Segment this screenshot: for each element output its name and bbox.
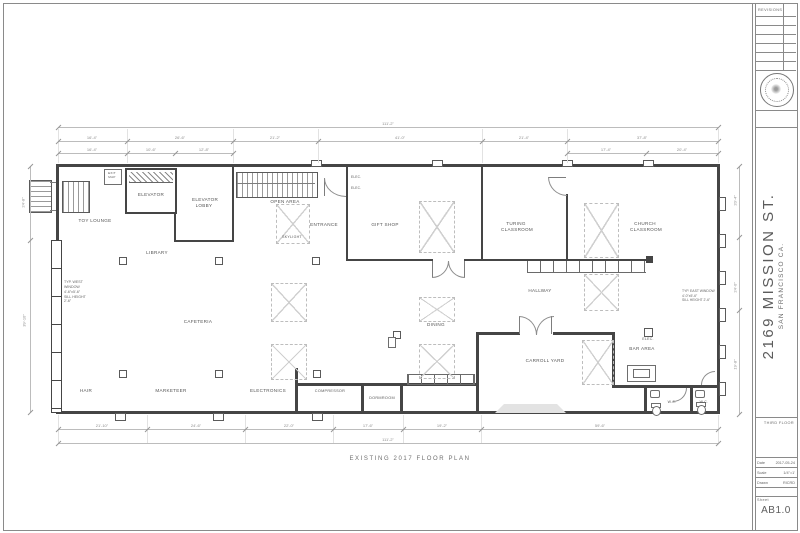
wall xyxy=(479,332,520,335)
room-label-entrance: ENTRANCE xyxy=(307,222,341,228)
extension-line xyxy=(482,129,483,163)
pilaster xyxy=(719,271,726,285)
skylight-outline xyxy=(271,344,307,380)
revisions-row-line xyxy=(756,52,796,53)
room-label-dormroom: DORMROOM xyxy=(362,396,402,401)
room-label-bar-area: BAR AREA xyxy=(624,346,660,352)
titleblock-row-line xyxy=(756,110,797,111)
room-label-hair: HAIR xyxy=(74,388,98,394)
hallway-cubbies xyxy=(527,261,646,273)
dimension-text: 41'-0" xyxy=(394,135,406,140)
drawn-row: Drawn RICRD xyxy=(757,478,795,487)
room-label-elevator: ELEVATOR xyxy=(133,192,169,198)
dimension-text: 39'-10" xyxy=(22,314,27,326)
dimension-line xyxy=(30,166,31,413)
titleblock-row-line xyxy=(756,417,797,418)
dimension-text: 20'-4" xyxy=(733,195,738,205)
wall xyxy=(612,385,718,388)
extension-line xyxy=(58,129,59,163)
column xyxy=(312,257,320,265)
scale-row: Scale 1/4"=1' xyxy=(757,468,795,477)
dimension-text: 37'-8" xyxy=(636,135,648,140)
column xyxy=(215,370,223,378)
pilaster xyxy=(311,160,322,167)
dimension-text: 19'-8" xyxy=(733,359,738,369)
titleblock-row-line xyxy=(756,127,797,128)
room-label-cafeteria: CAFETERIA xyxy=(178,319,218,325)
extension-line xyxy=(718,129,719,163)
bar-counter-inner xyxy=(633,369,650,378)
sheet-label: Sheet xyxy=(757,498,769,502)
titleblock-divider-inner xyxy=(755,3,756,530)
room-label-church-classroom: CHURCH CLASSROOM xyxy=(630,221,660,233)
dimension-text: 17'-4" xyxy=(600,147,612,152)
scale-label: Scale xyxy=(757,471,767,475)
revisions-header: REVISIONS xyxy=(758,8,782,12)
wall xyxy=(174,240,234,242)
titleblock-divider xyxy=(752,3,753,530)
dimension-text: 21'-4" xyxy=(518,135,530,140)
drawing-title: EXISTING 2017 FLOOR PLAN xyxy=(328,456,492,462)
dimension-text: 12'-8" xyxy=(198,147,210,152)
skylight-outline xyxy=(584,203,619,258)
dimension-text: 21'-2" xyxy=(269,135,281,140)
east-window-note: TYP. EAST WINDOW 4'-0"x5'-6" SILL HEIGHT… xyxy=(682,289,716,303)
floor-label: THIRD FLOOR xyxy=(757,421,794,425)
sheet-border xyxy=(3,3,798,531)
architect-stamp-center xyxy=(771,84,781,94)
wall xyxy=(476,332,479,413)
skylight-outline xyxy=(271,283,307,322)
skylight-outline xyxy=(419,297,455,322)
dimension-text: 111'-2" xyxy=(381,437,395,442)
date-row: Date 2017-05-24 xyxy=(757,458,795,467)
drawn-label: Drawn xyxy=(757,481,768,485)
skylight-outline xyxy=(419,344,455,379)
west-window-note: TYP. WEST WINDOW 4'-6"x5'-6" SILL HEIGHT… xyxy=(64,280,106,304)
room-label-open-area: OPEN AREA xyxy=(263,199,307,205)
dimension-text: 21'-10" xyxy=(95,423,109,428)
room-label-electronics: ELECTRONICS xyxy=(245,388,291,394)
dimension-line xyxy=(58,141,718,142)
yard-planter-ramp xyxy=(495,404,566,413)
exterior-stair xyxy=(29,180,52,213)
pilaster xyxy=(312,413,323,421)
dimension-text: 16'-4" xyxy=(86,135,98,140)
elevator-hatch xyxy=(129,172,173,183)
wall xyxy=(295,383,404,386)
skylight-outline xyxy=(582,340,614,385)
room-label-elec-b: ELEC. xyxy=(351,186,365,190)
room-label-wc-left: W.C. xyxy=(664,400,680,405)
project-address: 2169 MISSION ST. xyxy=(760,151,778,401)
revisions-row-line xyxy=(756,43,796,44)
wall xyxy=(232,166,234,242)
pilaster xyxy=(213,413,224,421)
room-label-carroll-yard: CARROLL YARD xyxy=(517,358,573,364)
pilaster xyxy=(719,234,726,248)
date-label: Date xyxy=(757,461,765,465)
pilaster xyxy=(719,345,726,359)
dimension-line xyxy=(58,443,718,444)
wall xyxy=(174,212,176,242)
revisions-row-line xyxy=(756,16,796,17)
pilaster xyxy=(719,197,726,211)
room-label-marketeer: MARKETEER xyxy=(149,388,193,394)
dimension-text: 19'-2" xyxy=(436,423,448,428)
dimension-text: 22'-0" xyxy=(283,423,295,428)
room-label-gift-shop: GIFT SHOP xyxy=(365,222,405,228)
room-label-turing-classroom: TURING CLASSROOM xyxy=(501,221,531,233)
floor-plan-sheet: REVISIONS 2169 MISSION ST. SAN FRANCISCO… xyxy=(0,0,800,533)
wall xyxy=(566,194,568,261)
extension-line xyxy=(318,129,319,163)
room-label-elevator-lobby: ELEVATOR LOBBY xyxy=(192,197,216,209)
revisions-row-line xyxy=(756,25,796,26)
pilaster xyxy=(643,160,654,167)
stair-rail xyxy=(237,183,315,184)
skylight-outline xyxy=(419,201,455,253)
dimension-line xyxy=(567,153,718,154)
interior-stair-west xyxy=(62,181,90,213)
wall xyxy=(553,332,615,335)
pilaster xyxy=(432,160,443,167)
stair-connector xyxy=(50,182,56,183)
pilaster xyxy=(719,382,726,396)
stair-connector xyxy=(50,210,56,211)
revisions-row-line xyxy=(756,70,796,71)
dimension-line xyxy=(58,153,233,154)
room-label-skylight: SKYLIGHT xyxy=(276,235,308,240)
dimension-text: 16'-4" xyxy=(86,147,98,152)
wall xyxy=(346,164,348,261)
pilaster xyxy=(115,413,126,421)
dimension-text: 17'-6" xyxy=(362,423,374,428)
wall xyxy=(481,164,483,261)
sheet-number: AB1.0 xyxy=(756,505,796,516)
dimension-text: 26'-6" xyxy=(174,135,186,140)
wall xyxy=(56,164,720,167)
room-label-dining: DINING xyxy=(418,322,454,328)
sink xyxy=(650,390,660,398)
dimension-text: 59'-6" xyxy=(594,423,606,428)
dimension-text: 10'-6" xyxy=(145,147,157,152)
wall-post xyxy=(646,256,653,263)
pilaster xyxy=(719,308,726,322)
room-label-wc-right: W.C. xyxy=(696,400,712,405)
room-label-elec-a: ELEC. xyxy=(351,175,365,179)
wall xyxy=(644,388,647,413)
dimension-text: 24'-6" xyxy=(190,423,202,428)
dimension-text: 24'-0" xyxy=(733,282,738,292)
room-label-compressor: COMPRESSOR xyxy=(308,389,352,394)
room-label-elec: ELEC. xyxy=(639,337,657,342)
project-city: SAN FRANCISCO CA. xyxy=(778,179,787,393)
wall xyxy=(56,164,59,242)
west-window-wall xyxy=(51,240,62,413)
wall xyxy=(56,411,720,414)
room-label-toy-lounge: TOY LOUNGE xyxy=(75,218,115,224)
room-label-hallway: HALLWAY xyxy=(522,288,558,294)
toilet-bowl xyxy=(652,406,661,416)
dimension-line xyxy=(58,429,718,430)
column xyxy=(215,257,223,265)
wall xyxy=(346,259,433,261)
dimension-text: 24'-8" xyxy=(21,197,26,207)
extension-line xyxy=(233,129,234,163)
skylight-outline xyxy=(584,274,619,311)
revisions-row-line xyxy=(756,61,796,62)
scale-value: 1/4"=1' xyxy=(783,471,795,475)
toilet-bowl xyxy=(697,405,706,415)
wall xyxy=(690,388,693,413)
central-stair xyxy=(236,172,318,198)
titleblock-row-line xyxy=(756,487,797,488)
equipment xyxy=(388,337,396,348)
column xyxy=(644,328,653,337)
dimension-text: 111'-2" xyxy=(381,121,395,126)
column xyxy=(119,257,127,265)
titleblock-row-line xyxy=(756,496,797,497)
extension-line xyxy=(127,129,128,163)
column xyxy=(119,370,127,378)
sink xyxy=(695,390,705,398)
drawn-value: RICRD xyxy=(783,481,795,485)
extension-line xyxy=(567,129,568,163)
date-value: 2017-05-24 xyxy=(776,461,795,465)
room-label-library: LIBRARY xyxy=(140,250,174,256)
column xyxy=(313,370,321,378)
room-label-exit-map: EXIT MAP xyxy=(104,171,120,179)
dimension-text: 20'-4" xyxy=(676,147,688,152)
revisions-row-line xyxy=(756,34,796,35)
dimension-line xyxy=(58,127,718,128)
dimension-line xyxy=(739,166,740,415)
